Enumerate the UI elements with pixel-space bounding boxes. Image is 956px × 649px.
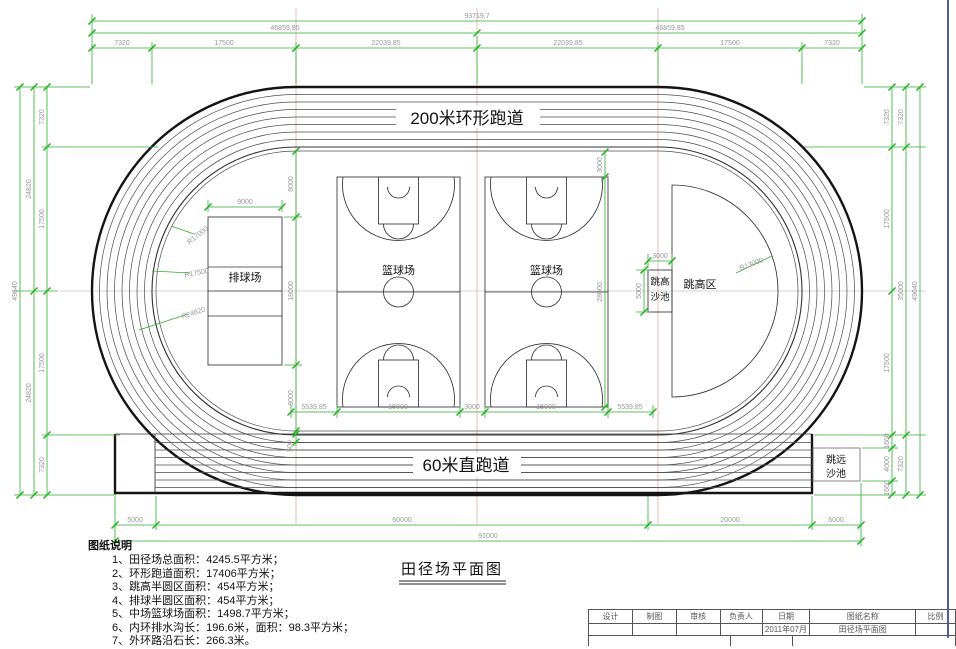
note-item: 4、排球半圆区面积：454平方米； [88, 595, 354, 609]
dim-text: 8000 [288, 390, 295, 406]
note-item: 2、环形跑道面积：17406平方米； [88, 568, 354, 582]
three-point-arc [343, 344, 455, 407]
dim-text: 7320 [898, 456, 905, 472]
title-block: 设计 制图 审核 负责人 日期 图纸名称 比例 2011年07月 田径场平面图 [588, 609, 956, 646]
note-item: 6、内环排水沟长：196.6米，面积：98.3平方米； [88, 622, 354, 636]
basketball-label: 篮球场 [382, 263, 415, 277]
note-item: 1、田径场总面积：4245.5平方米； [88, 554, 354, 568]
drawing-notes: 图纸说明 1、田径场总面积：4245.5平方米； 2、环形跑道面积：17406平… [88, 539, 354, 649]
basketball-key [379, 177, 419, 224]
straight-track-label: 60米直跑道 [423, 456, 510, 475]
dim-text: 3000 [464, 404, 480, 411]
basketball-key [527, 177, 567, 224]
title-block-header-row: 设计 制图 审核 负责人 日期 图纸名称 比例 [588, 609, 956, 623]
dim-text: 17500 [884, 353, 891, 373]
restricted-arc [388, 386, 410, 397]
dim-text: 22039,85 [371, 40, 400, 47]
dim-text: 46859,85 [270, 25, 299, 32]
dim-text: 22039,85 [553, 40, 582, 47]
dim-text: 18000 [288, 281, 295, 301]
title-block-date: 2011年07月 [763, 624, 811, 635]
title-block-cell [916, 624, 956, 635]
dim-text: 49640 [912, 281, 919, 301]
title-block-header: 比例 [916, 610, 956, 623]
dim-text: 17500 [214, 40, 234, 47]
note-item: 3、跳高半圆区面积：454平方米； [88, 581, 354, 595]
volleyball-label: 排球场 [229, 270, 262, 284]
dim-text: 28000 [597, 282, 604, 302]
dim-text: 15000 [536, 404, 556, 411]
dim-text: 17500 [39, 353, 46, 373]
restricted-arc [536, 187, 558, 198]
title-block-cell [589, 624, 633, 635]
dim-text: 46859,85 [655, 25, 684, 32]
free-throw-arc [384, 345, 414, 360]
radius-label: R17000 [186, 225, 210, 246]
dim-text: 7320 [114, 40, 130, 47]
dim-text: 24820 [26, 179, 33, 199]
dim-text: 7320 [898, 109, 905, 125]
note-item: 7、外环路沿石长：266.3米。 [88, 635, 354, 649]
dim-text: 17500 [720, 40, 740, 47]
basketball-label: 篮球场 [530, 263, 563, 277]
notes-heading: 图纸说明 [88, 539, 354, 554]
title-block-header: 设计 [589, 610, 633, 623]
dim-text: 1660 [884, 480, 891, 496]
plan-title: 田径场平面图 [401, 561, 503, 578]
high-jump-pit-label: 沙池 [650, 291, 670, 303]
dim-text: 5000 [127, 517, 143, 524]
radius-label: R24820 [181, 306, 207, 320]
basketball-key [527, 360, 567, 407]
note-item: 5、中场篮球场面积：1498.7平方米； [88, 608, 354, 622]
dim-text: 17500 [39, 209, 46, 229]
plan-title-underline [399, 581, 506, 584]
title-block-drawing-name: 田径场平面图 [810, 624, 916, 635]
title-block-cell [633, 624, 677, 635]
three-point-arc [343, 177, 455, 240]
title-block-value-row: 2011年07月 田径场平面图 [588, 623, 956, 635]
basketball-court-1: 篮球场 [337, 177, 460, 407]
radius-label: R17500 [184, 268, 209, 279]
dim-text: 5000 [636, 283, 643, 299]
dim-text: 1660 [884, 433, 891, 449]
dim-text: 20000 [720, 517, 740, 524]
dim-text: 24820 [26, 383, 33, 403]
ring-track-label: 200米环形跑道 [410, 109, 523, 128]
dim-text: 4000 [884, 456, 891, 472]
title-block-bottom-row [588, 635, 956, 646]
basketball-key [379, 360, 419, 407]
free-throw-arc [384, 224, 414, 239]
dim-text: 60000 [392, 517, 412, 524]
dim-text: 5539,85 [617, 404, 642, 411]
dim-text: 8000 [288, 176, 295, 192]
high-jump-area-label: 跳高区 [684, 277, 717, 291]
dim-text: 6000 [828, 517, 844, 524]
long-jump-pit: 跳远 沙池 [813, 448, 860, 481]
dim-text: 35000 [898, 281, 905, 301]
free-throw-arc [532, 224, 562, 239]
dim-text: 93719,7 [464, 13, 489, 20]
basketball-court-2: 篮球场 [485, 177, 608, 407]
dim-text: 17500 [884, 209, 891, 229]
title-block-header: 制图 [633, 610, 677, 623]
title-block-header: 图纸名称 [810, 610, 916, 623]
title-block-header: 日期 [763, 610, 811, 623]
dim-text: 500 [287, 440, 294, 452]
dim-text: 7320 [39, 457, 46, 473]
viewport-frame-line [947, 0, 949, 638]
radius-label: R13000 [739, 257, 765, 272]
dim-text: 5539,85 [301, 404, 326, 411]
free-throw-arc [532, 345, 562, 360]
dim-text: 7320 [824, 40, 840, 47]
title-block-cell [677, 624, 721, 635]
dim-text: 3000 [597, 157, 604, 173]
dim-text: 7320 [884, 109, 891, 125]
dim-text: 15000 [388, 404, 408, 411]
long-jump-pit-label: 沙池 [826, 467, 846, 480]
restricted-arc [536, 386, 558, 397]
dim-text: 91000 [478, 533, 498, 540]
volleyball-court: 排球场 [208, 217, 282, 365]
long-jump-pit-label: 跳远 [826, 453, 846, 466]
title-block-header: 负责人 [721, 610, 763, 623]
title-block-header: 审核 [677, 610, 721, 623]
dim-text: 9000 [237, 199, 253, 206]
plan-title-group: 田径场平面图 [399, 561, 506, 584]
restricted-arc [388, 187, 410, 198]
dim-text: 3000 [652, 253, 668, 260]
title-block-cell [721, 624, 763, 635]
dim-text: 7320 [39, 109, 46, 125]
high-jump-pit-label: 跳高 [650, 276, 669, 288]
three-point-arc [491, 177, 603, 240]
dim-text: 49640 [12, 281, 19, 301]
three-point-arc [491, 344, 603, 407]
